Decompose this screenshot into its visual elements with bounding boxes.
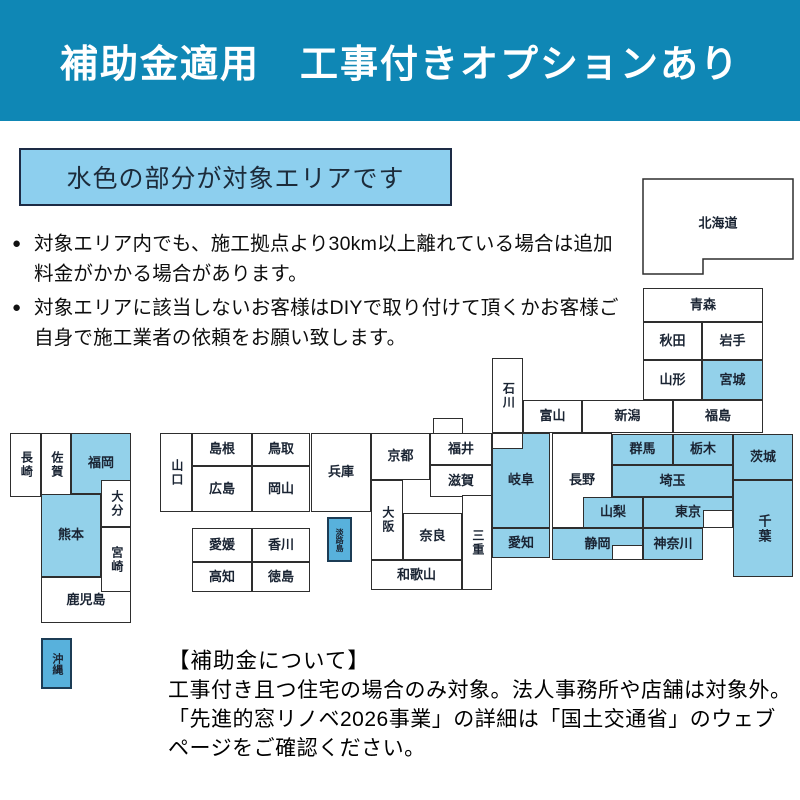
prefecture-akita: 秋田 bbox=[643, 322, 702, 360]
prefecture-miyagi: 宮城 bbox=[702, 360, 763, 400]
footer-line: 「先進的窓リノベ2026事業」の詳細は「国土交通省」のウェブ bbox=[168, 705, 793, 734]
svg-text:北海道: 北海道 bbox=[698, 215, 737, 230]
prefecture-mie: 三重 bbox=[462, 495, 492, 590]
prefecture-tottori: 鳥取 bbox=[252, 433, 310, 466]
prefecture-ishikawa: 石川 bbox=[492, 358, 523, 433]
prefecture-oita: 大分 bbox=[101, 480, 131, 527]
prefecture-kyoto: 京都 bbox=[371, 433, 430, 480]
prefecture-iwate: 岩手 bbox=[702, 322, 763, 360]
prefecture-shimane: 島根 bbox=[192, 433, 252, 466]
prefecture-chiba: 千葉 bbox=[733, 480, 793, 577]
prefecture-aichi: 愛知 bbox=[492, 528, 550, 558]
prefecture-nagasaki: 長崎 bbox=[10, 433, 41, 497]
footer-heading: 【補助金について】 bbox=[168, 646, 793, 676]
prefecture-kochi: 高知 bbox=[192, 562, 252, 592]
prefecture-shizuoka-notch bbox=[612, 545, 643, 560]
prefecture-ibaraki: 茨城 bbox=[733, 434, 793, 480]
prefecture-kanagawa: 神奈川 bbox=[643, 528, 703, 560]
prefecture-hokkaido: 北海道 bbox=[642, 178, 795, 276]
prefecture-fukui-bump bbox=[433, 418, 463, 434]
footer-line: ページをご確認ください。 bbox=[168, 734, 793, 763]
infographic-page: 補助金適用 工事付きオプションあり 水色の部分が対象エリアです ● 対象エリア内… bbox=[0, 0, 800, 800]
prefecture-yamanashi: 山梨 bbox=[583, 497, 643, 528]
prefecture-nara: 奈良 bbox=[403, 513, 462, 560]
prefecture-wakayama: 和歌山 bbox=[371, 560, 462, 590]
prefecture-saitama: 埼玉 bbox=[612, 465, 733, 497]
prefecture-fukui: 福井 bbox=[430, 433, 492, 465]
prefecture-miyazaki: 宮崎 bbox=[101, 527, 131, 592]
prefecture-kagawa: 香川 bbox=[252, 528, 310, 562]
prefecture-tochigi: 栃木 bbox=[673, 434, 733, 465]
prefecture-okayama: 岡山 bbox=[252, 466, 310, 512]
footer-note: 【補助金について】 工事付き且つ住宅の場合のみ対象。法人事務所や店舗は対象外。 … bbox=[168, 646, 793, 763]
prefecture-hyogo: 兵庫 bbox=[311, 433, 371, 512]
prefecture-hiroshima: 広島 bbox=[192, 466, 252, 512]
prefecture-shiga: 滋賀 bbox=[430, 465, 492, 497]
prefecture-ehime: 愛媛 bbox=[192, 528, 252, 562]
prefecture-yamaguchi: 山口 bbox=[160, 433, 192, 512]
prefecture-kumamoto: 熊本 bbox=[41, 494, 101, 577]
prefecture-tokyo-notch bbox=[703, 510, 733, 528]
prefecture-toyama: 富山 bbox=[523, 400, 582, 433]
prefecture-saga: 佐賀 bbox=[41, 433, 71, 497]
prefecture-gunma: 群馬 bbox=[612, 434, 673, 465]
prefecture-awaji: 淡路島 bbox=[327, 517, 352, 562]
prefecture-gifu-notch bbox=[492, 433, 523, 449]
prefecture-niigata: 新潟 bbox=[582, 400, 673, 433]
prefecture-okinawa: 沖縄 bbox=[41, 638, 72, 689]
prefecture-fukushima: 福島 bbox=[673, 400, 763, 433]
prefecture-yamagata: 山形 bbox=[643, 360, 702, 400]
footer-line: 工事付き且つ住宅の場合のみ対象。法人事務所や店舗は対象外。 bbox=[168, 676, 793, 705]
prefecture-aomori: 青森 bbox=[643, 288, 763, 322]
prefecture-tokushima: 徳島 bbox=[252, 562, 310, 592]
prefecture-osaka: 大阪 bbox=[371, 480, 403, 560]
